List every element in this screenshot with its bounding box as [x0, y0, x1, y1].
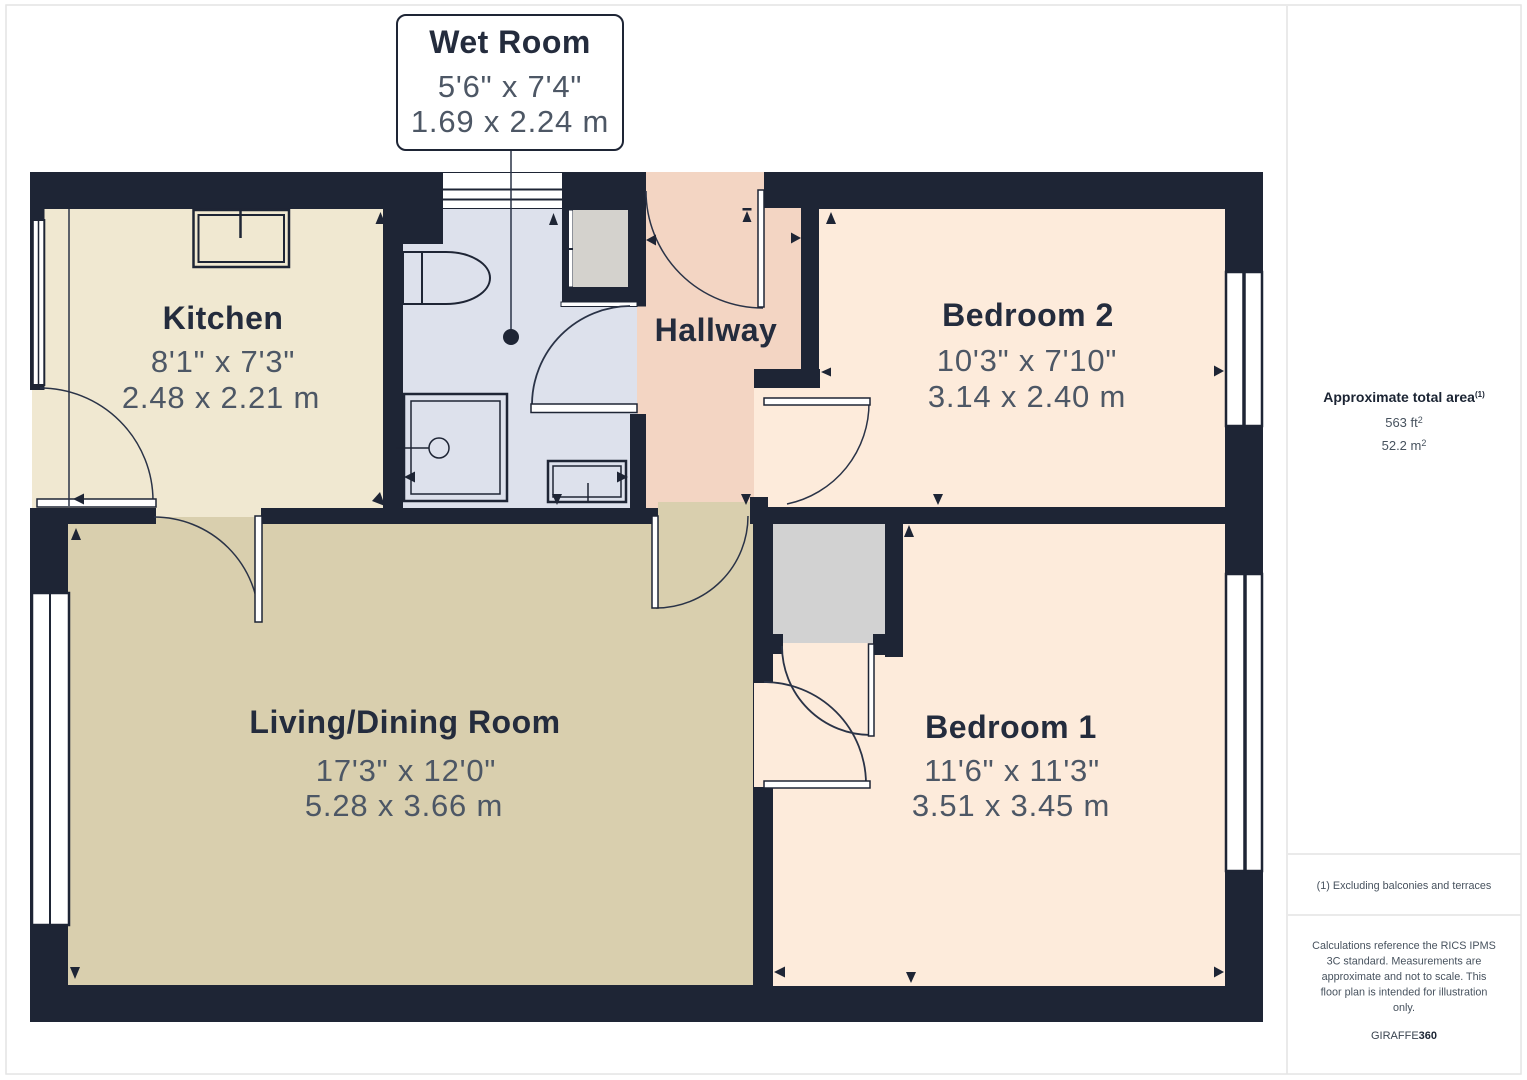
svg-text:17'3" x 12'0": 17'3" x 12'0" [316, 753, 496, 788]
svg-text:10'3" x 7'10": 10'3" x 7'10" [937, 343, 1117, 378]
svg-text:(1) Excluding balconies and te: (1) Excluding balconies and terraces [1317, 880, 1492, 892]
svg-text:5.28 x 3.66 m: 5.28 x 3.66 m [305, 788, 503, 823]
svg-text:563 ft2: 563 ft2 [1385, 415, 1423, 430]
svg-text:Hallway: Hallway [655, 312, 778, 348]
svg-text:only.: only. [1393, 1002, 1415, 1014]
svg-text:5'6" x 7'4": 5'6" x 7'4" [438, 69, 582, 104]
svg-text:2.48 x 2.21 m: 2.48 x 2.21 m [122, 380, 320, 415]
svg-text:Kitchen: Kitchen [163, 300, 284, 336]
svg-text:11'6" x 11'3": 11'6" x 11'3" [924, 753, 1100, 788]
svg-text:approximate and not to scale.: approximate and not to scale. This [1322, 971, 1487, 983]
svg-text:floor plan is intended for ill: floor plan is intended for illustration [1321, 987, 1488, 999]
svg-text:Calculations reference the RIC: Calculations reference the RICS IPMS [1312, 940, 1496, 952]
svg-text:GIRAFFE360: GIRAFFE360 [1371, 1030, 1437, 1042]
svg-text:8'1" x 7'3": 8'1" x 7'3" [151, 344, 295, 379]
svg-text:Bedroom 1: Bedroom 1 [925, 709, 1097, 745]
svg-text:Approximate total area(1): Approximate total area(1) [1323, 389, 1485, 405]
svg-text:Living/Dining Room: Living/Dining Room [249, 704, 560, 740]
svg-text:1.69 x 2.24 m: 1.69 x 2.24 m [411, 104, 609, 139]
svg-text:3.51 x 3.45 m: 3.51 x 3.45 m [912, 788, 1110, 823]
svg-text:3C standard. Measurements are: 3C standard. Measurements are [1327, 956, 1482, 968]
svg-text:52.2 m2: 52.2 m2 [1382, 438, 1427, 453]
svg-text:Bedroom 2: Bedroom 2 [942, 297, 1114, 333]
svg-text:Wet Room: Wet Room [429, 24, 591, 60]
svg-text:3.14 x 2.40 m: 3.14 x 2.40 m [928, 379, 1126, 414]
